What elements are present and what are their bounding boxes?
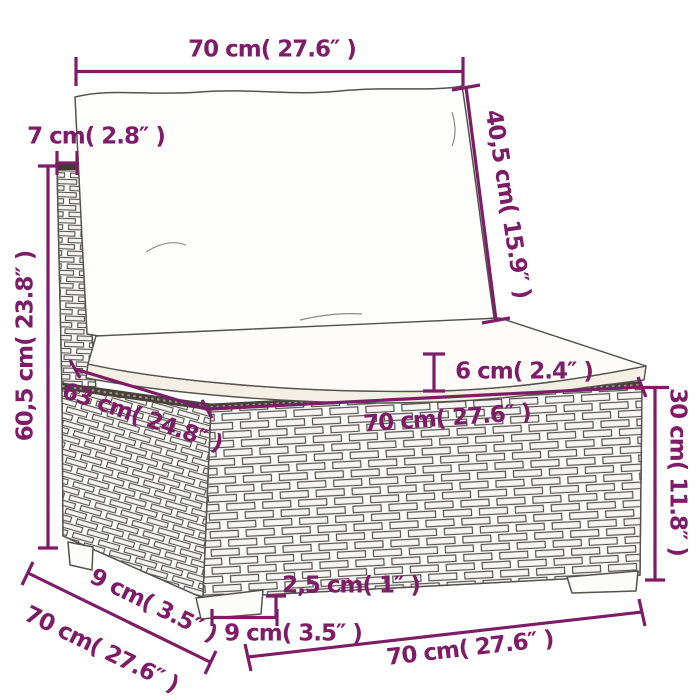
- dim-leg-height: 2,5 cm( 1″ ): [266, 573, 420, 618]
- sofa-line-drawing: [55, 86, 646, 619]
- dim-back-cushion-width: 70 cm( 27.6″ ): [76, 37, 463, 87]
- dim-back-panel-thickness-label: 7 cm( 2.8″ ): [27, 124, 165, 150]
- dim-base-height-label: 30 cm( 11.8″ ): [665, 388, 691, 556]
- dim-seat-cushion-thickness-label: 6 cm( 2.4″ ): [455, 359, 593, 385]
- dim-total-height-line: [38, 166, 58, 548]
- dim-leg-depth-label: 9 cm( 3.5″ ): [224, 621, 362, 647]
- dim-leg-height-label: 2,5 cm( 1″ ): [282, 573, 420, 599]
- dim-total-height-label: 60,5 cm( 23.8″ ): [13, 251, 39, 441]
- dim-back-cushion-width-label: 70 cm( 27.6″ ): [188, 37, 356, 63]
- back-left-leg: [68, 542, 93, 570]
- dim-total-height: 60,5 cm( 23.8″ ): [13, 166, 59, 548]
- diagram-canvas: 70 cm( 27.6″ ) 7 cm( 2.8″ ) 60,5 cm( 23.…: [0, 0, 700, 700]
- dim-base-height: 30 cm( 11.8″ ): [641, 388, 691, 581]
- product-dimension-diagram: 70 cm( 27.6″ ) 7 cm( 2.8″ ) 60,5 cm( 23.…: [0, 0, 700, 700]
